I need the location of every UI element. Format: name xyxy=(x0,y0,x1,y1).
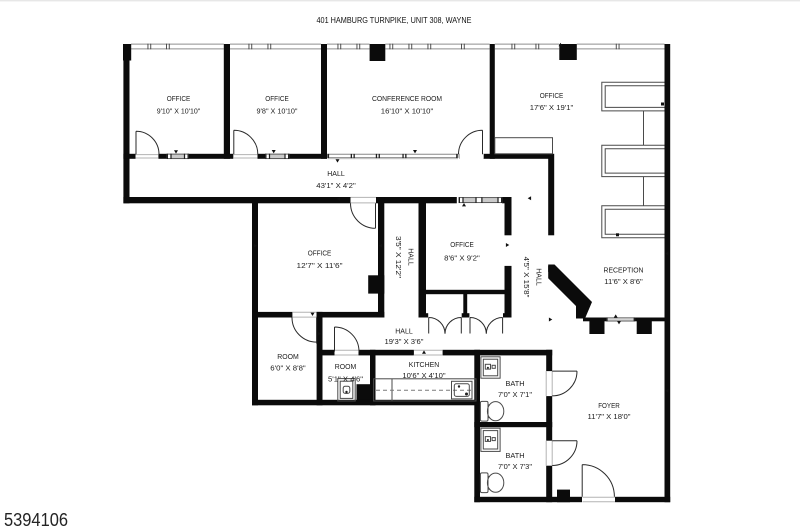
svg-text:8'6" X 9'2": 8'6" X 9'2" xyxy=(444,254,480,263)
svg-text:401 HAMBURG TURNPIKE, UNIT 308: 401 HAMBURG TURNPIKE, UNIT 308, WAYNE xyxy=(317,15,472,25)
svg-text:5'1" X 4'6": 5'1" X 4'6" xyxy=(328,375,363,384)
svg-text:ROOM: ROOM xyxy=(277,352,299,361)
svg-text:9'10" X 10'10": 9'10" X 10'10" xyxy=(157,107,201,116)
svg-text:11'7" X 18'0": 11'7" X 18'0" xyxy=(588,412,631,421)
svg-text:3'5" X 12'2": 3'5" X 12'2" xyxy=(394,236,403,278)
svg-text:11'6" X 8'6": 11'6" X 8'6" xyxy=(604,277,643,286)
svg-text:9'8" X 10'10": 9'8" X 10'10" xyxy=(257,107,298,116)
svg-text:7'0" X 7'3": 7'0" X 7'3" xyxy=(498,462,532,471)
svg-text:ROOM: ROOM xyxy=(335,362,357,371)
svg-text:CONFERENCE ROOM: CONFERENCE ROOM xyxy=(372,94,442,103)
svg-text:43'1" X 4'2": 43'1" X 4'2" xyxy=(316,181,356,190)
svg-text:BATH: BATH xyxy=(506,451,525,460)
svg-text:19'3" X 3'6": 19'3" X 3'6" xyxy=(385,337,424,346)
svg-text:HALL: HALL xyxy=(407,248,416,266)
svg-text:HALL: HALL xyxy=(327,169,345,178)
svg-text:16'10" X 10'10": 16'10" X 10'10" xyxy=(381,107,434,116)
svg-text:OFFICE: OFFICE xyxy=(265,94,289,103)
svg-text:OFFICE: OFFICE xyxy=(450,240,474,249)
svg-text:KITCHEN: KITCHEN xyxy=(409,360,440,369)
svg-text:FOYER: FOYER xyxy=(598,401,620,410)
svg-text:HALL: HALL xyxy=(535,268,544,286)
svg-text:17'6" X 19'1": 17'6" X 19'1" xyxy=(530,103,574,112)
svg-text:OFFICE: OFFICE xyxy=(540,91,564,100)
svg-text:4'5" X 15'8": 4'5" X 15'8" xyxy=(522,257,531,298)
svg-text:RECEPTION: RECEPTION xyxy=(604,266,644,275)
svg-text:7'0" X 7'1": 7'0" X 7'1" xyxy=(498,390,532,399)
svg-text:12'7" X 11'6": 12'7" X 11'6" xyxy=(297,261,343,270)
svg-text:5394106: 5394106 xyxy=(4,509,68,530)
svg-text:HALL: HALL xyxy=(395,327,413,336)
svg-text:6'0" X 8'8": 6'0" X 8'8" xyxy=(270,364,306,373)
svg-text:10'6" X 4'10": 10'6" X 4'10" xyxy=(402,371,445,380)
svg-text:OFFICE: OFFICE xyxy=(167,94,191,103)
svg-text:BATH: BATH xyxy=(506,379,525,388)
svg-text:OFFICE: OFFICE xyxy=(308,249,332,258)
